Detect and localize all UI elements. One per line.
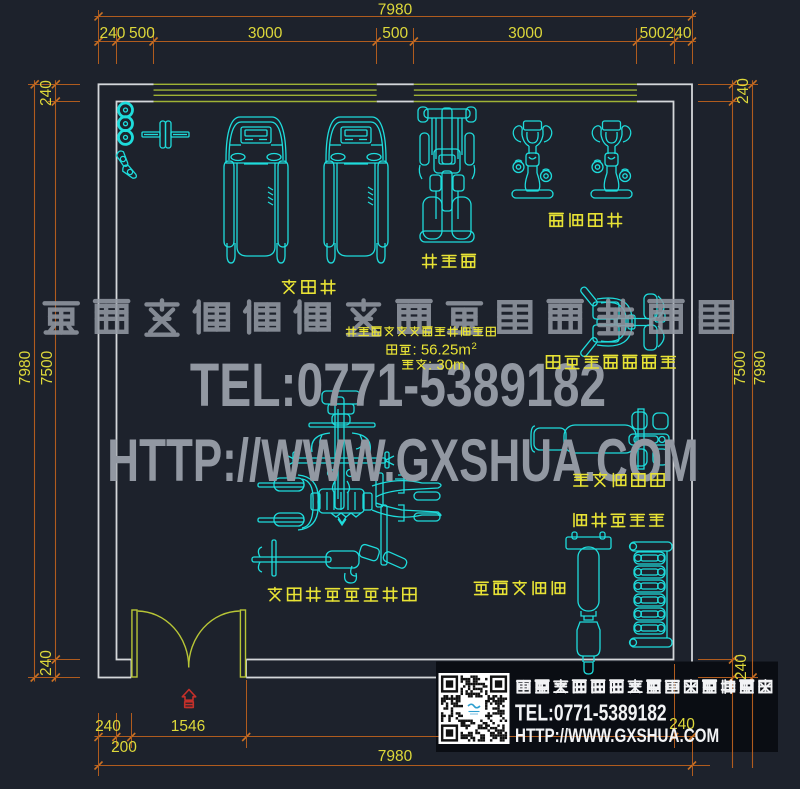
svg-text:HTTP://WWW.GXSHUA.COM: HTTP://WWW.GXSHUA.COM: [515, 724, 719, 746]
svg-text:240: 240: [735, 78, 752, 104]
svg-text:240: 240: [666, 25, 692, 42]
svg-text:240: 240: [95, 718, 121, 735]
svg-text:TEL:0771-5389182: TEL:0771-5389182: [190, 350, 606, 419]
svg-text:2: 2: [472, 341, 477, 352]
svg-text:3000: 3000: [508, 25, 543, 42]
svg-text:500: 500: [640, 25, 666, 42]
svg-text:: 30m: : 30m: [428, 357, 466, 374]
svg-text:240: 240: [38, 80, 55, 106]
svg-text:TEL:0771-5389182: TEL:0771-5389182: [515, 701, 667, 726]
svg-text:7980: 7980: [17, 350, 34, 385]
svg-text:500: 500: [382, 25, 408, 42]
svg-text:200: 200: [111, 739, 137, 756]
svg-text:7980: 7980: [378, 2, 413, 19]
svg-text:3000: 3000: [248, 25, 283, 42]
svg-text:7980: 7980: [752, 350, 769, 385]
svg-text:240: 240: [99, 25, 125, 42]
svg-text:240: 240: [733, 654, 750, 680]
svg-text:7980: 7980: [378, 748, 413, 765]
svg-text:HTTP://WWW.GXSHUA.COM: HTTP://WWW.GXSHUA.COM: [107, 427, 698, 495]
svg-text:1546: 1546: [171, 718, 205, 735]
svg-text:500: 500: [129, 25, 155, 42]
svg-text:7500: 7500: [732, 350, 749, 385]
svg-text:7500: 7500: [39, 350, 56, 385]
svg-text:240: 240: [38, 650, 55, 676]
